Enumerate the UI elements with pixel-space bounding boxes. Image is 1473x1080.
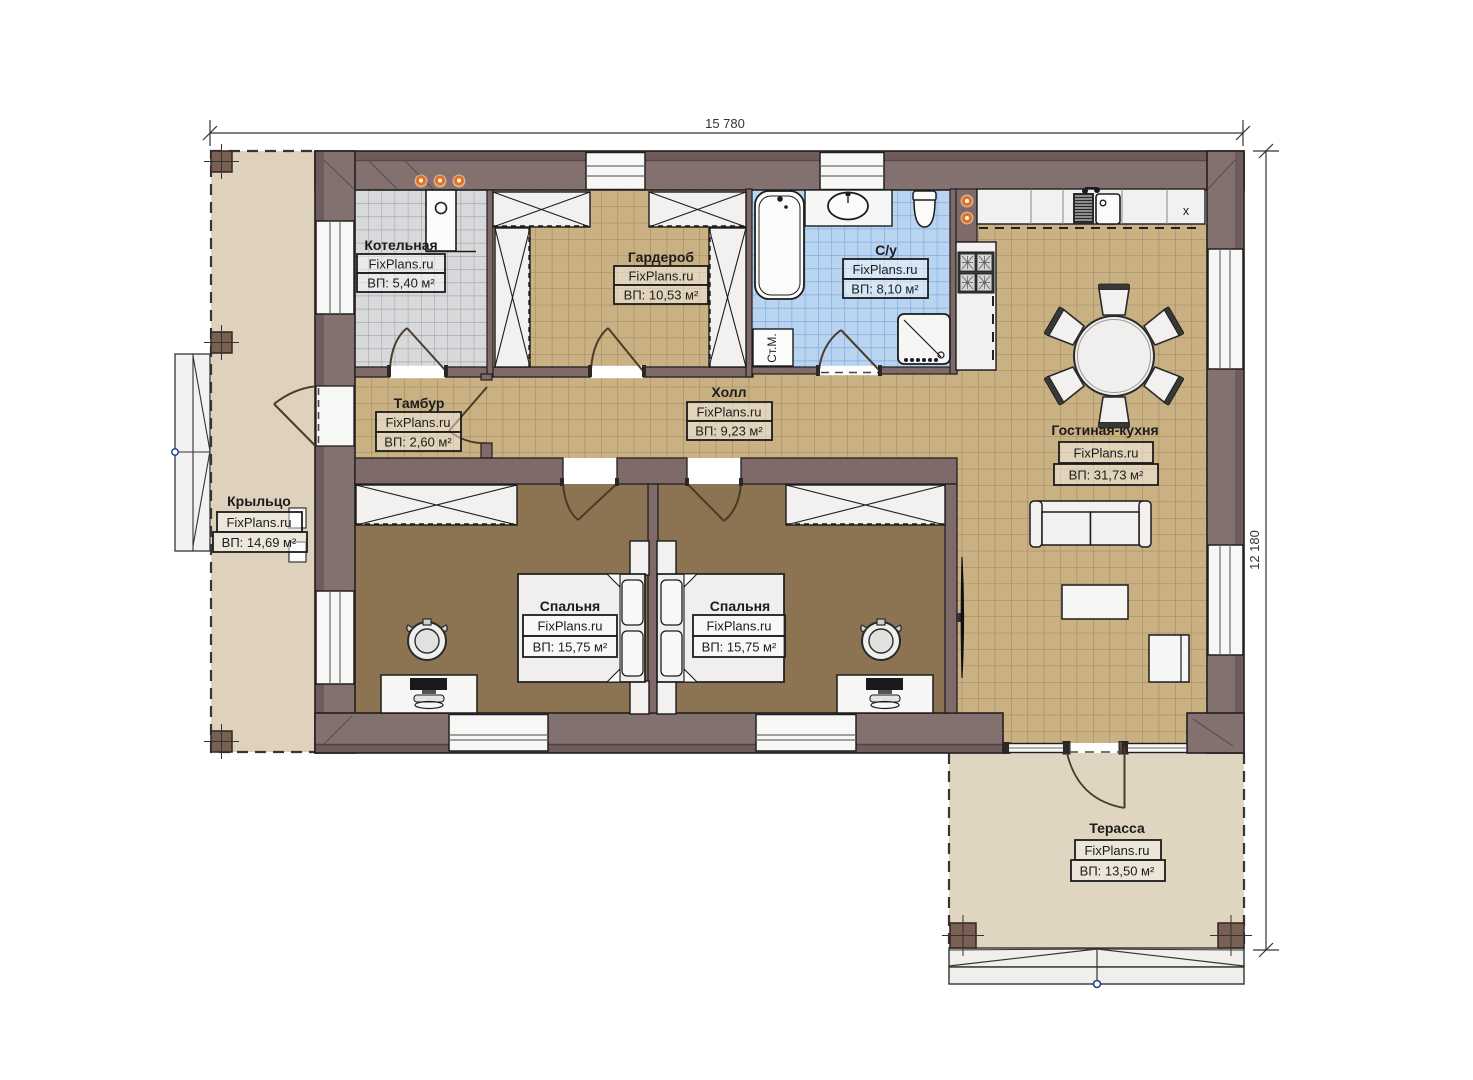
svg-text:ВП: 8,10 м²: ВП: 8,10 м² xyxy=(851,282,919,297)
svg-text:Спальня: Спальня xyxy=(540,598,600,614)
svg-text:Ст.М.: Ст.М. xyxy=(765,333,779,363)
svg-text:FixPlans.ru: FixPlans.ru xyxy=(628,269,693,284)
svg-text:FixPlans.ru: FixPlans.ru xyxy=(537,619,602,634)
svg-text:ВП: 31,73 м²: ВП: 31,73 м² xyxy=(1069,468,1144,483)
svg-text:ВП: 13,50 м²: ВП: 13,50 м² xyxy=(1080,864,1155,879)
svg-text:Терасса: Терасса xyxy=(1089,820,1145,836)
svg-text:ВП: 15,75 м²: ВП: 15,75 м² xyxy=(702,640,777,655)
svg-text:ВП: 10,53 м²: ВП: 10,53 м² xyxy=(624,288,699,303)
svg-text:Крыльцо: Крыльцо xyxy=(227,493,291,509)
svg-text:С/у: С/у xyxy=(875,242,897,258)
svg-text:Гостиная-кухня: Гостиная-кухня xyxy=(1051,422,1158,438)
svg-text:Тамбур: Тамбур xyxy=(394,395,445,411)
svg-text:Гардероб: Гардероб xyxy=(628,249,695,265)
svg-text:x: x xyxy=(1183,204,1190,218)
svg-text:Холл: Холл xyxy=(711,384,746,400)
svg-text:ВП: 15,75 м²: ВП: 15,75 м² xyxy=(533,640,608,655)
svg-text:FixPlans.ru: FixPlans.ru xyxy=(852,262,917,277)
svg-text:FixPlans.ru: FixPlans.ru xyxy=(696,405,761,420)
svg-text:12 180: 12 180 xyxy=(1247,530,1262,570)
svg-text:FixPlans.ru: FixPlans.ru xyxy=(1084,843,1149,858)
svg-text:FixPlans.ru: FixPlans.ru xyxy=(1073,446,1138,461)
svg-text:FixPlans.ru: FixPlans.ru xyxy=(368,257,433,272)
svg-text:FixPlans.ru: FixPlans.ru xyxy=(226,515,291,530)
svg-text:Котельная: Котельная xyxy=(364,237,437,253)
svg-text:ВП: 14,69 м²: ВП: 14,69 м² xyxy=(222,535,297,550)
svg-text:ВП: 2,60 м²: ВП: 2,60 м² xyxy=(384,435,452,450)
svg-text:15 780: 15 780 xyxy=(705,116,745,131)
svg-text:FixPlans.ru: FixPlans.ru xyxy=(385,415,450,430)
svg-text:ВП: 9,23 м²: ВП: 9,23 м² xyxy=(695,424,763,439)
svg-text:Спальня: Спальня xyxy=(710,598,770,614)
svg-text:ВП: 5,40 м²: ВП: 5,40 м² xyxy=(367,276,435,291)
svg-text:FixPlans.ru: FixPlans.ru xyxy=(706,619,771,634)
